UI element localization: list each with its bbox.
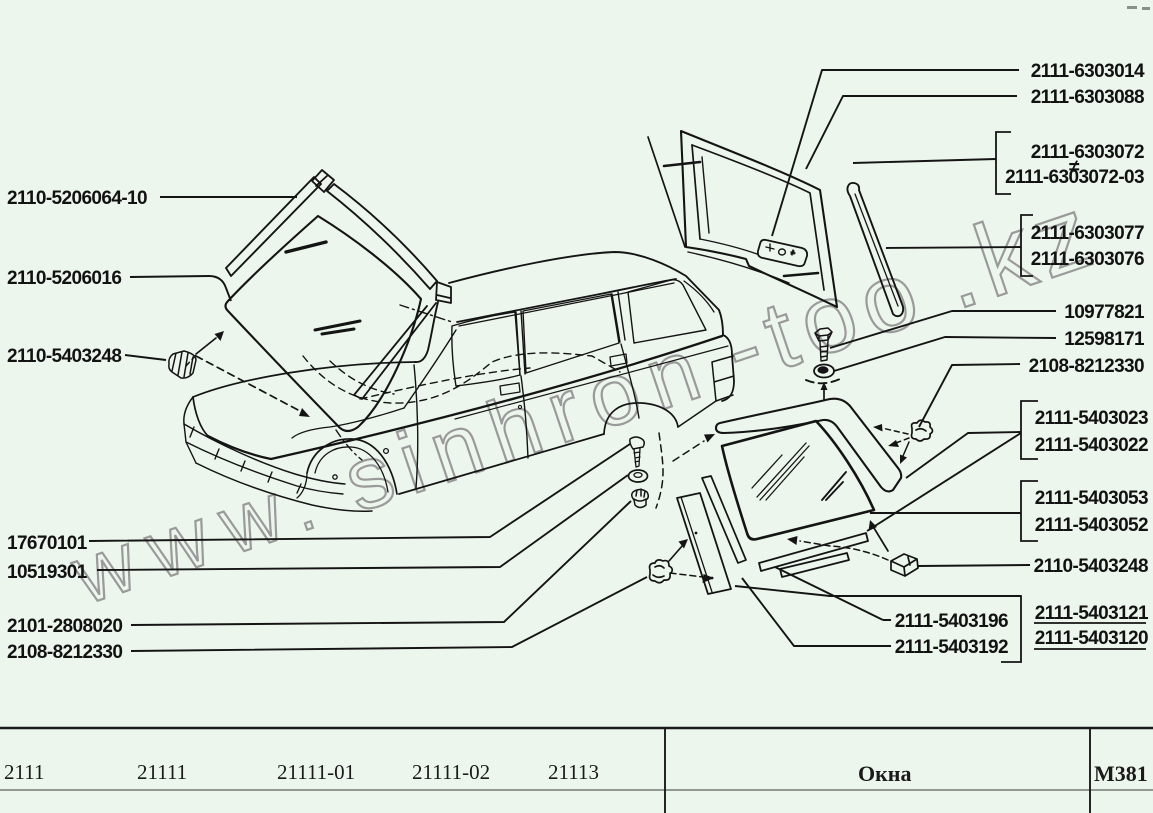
svg-text:2111-6303088: 2111-6303088 bbox=[1031, 87, 1144, 108]
svg-text:2111-6303077: 2111-6303077 bbox=[1031, 223, 1144, 244]
svg-text:2110-5206064-10: 2110-5206064-10 bbox=[7, 188, 147, 209]
svg-text:2108-8212330: 2108-8212330 bbox=[7, 642, 122, 663]
svg-text:10977821: 10977821 bbox=[1064, 302, 1145, 323]
svg-text:М381: М381 bbox=[1094, 761, 1148, 786]
svg-text:2111-6303072-03: 2111-6303072-03 bbox=[1005, 167, 1144, 188]
svg-text:21113: 21113 bbox=[548, 760, 599, 784]
svg-text:21111-01: 21111-01 bbox=[277, 760, 355, 784]
svg-text:2110-5403248: 2110-5403248 bbox=[7, 346, 121, 367]
svg-text:2111-5403196: 2111-5403196 bbox=[895, 611, 1008, 632]
svg-text:Окна: Окна bbox=[858, 761, 911, 786]
svg-text:2110-5206016: 2110-5206016 bbox=[7, 268, 121, 289]
svg-text:12598171: 12598171 bbox=[1064, 329, 1145, 350]
svg-text:10519301: 10519301 bbox=[7, 562, 88, 583]
svg-text:2111-5403053: 2111-5403053 bbox=[1035, 488, 1148, 509]
svg-text:2111-5403121: 2111-5403121 bbox=[1035, 603, 1149, 624]
svg-text:2111: 2111 bbox=[4, 760, 44, 784]
svg-text:2111-5403023: 2111-5403023 bbox=[1035, 408, 1148, 429]
svg-text:2111-5403192: 2111-5403192 bbox=[895, 637, 1008, 658]
svg-text:21111: 21111 bbox=[137, 760, 187, 784]
svg-text:2111-5403052: 2111-5403052 bbox=[1035, 515, 1148, 536]
svg-text:2111-6303014: 2111-6303014 bbox=[1031, 61, 1145, 82]
svg-text:2111-5403120: 2111-5403120 bbox=[1035, 628, 1148, 649]
svg-text:2108-8212330: 2108-8212330 bbox=[1029, 356, 1144, 377]
svg-text:2111-5403022: 2111-5403022 bbox=[1035, 435, 1148, 456]
svg-text:17670101: 17670101 bbox=[7, 533, 88, 554]
svg-text:2111-6303076: 2111-6303076 bbox=[1031, 249, 1144, 270]
svg-text:2110-5403248: 2110-5403248 bbox=[1034, 556, 1148, 577]
svg-text:21111-02: 21111-02 bbox=[412, 760, 490, 784]
svg-text:2111-6303072: 2111-6303072 bbox=[1031, 142, 1144, 163]
svg-text:2101-2808020: 2101-2808020 bbox=[7, 616, 122, 637]
